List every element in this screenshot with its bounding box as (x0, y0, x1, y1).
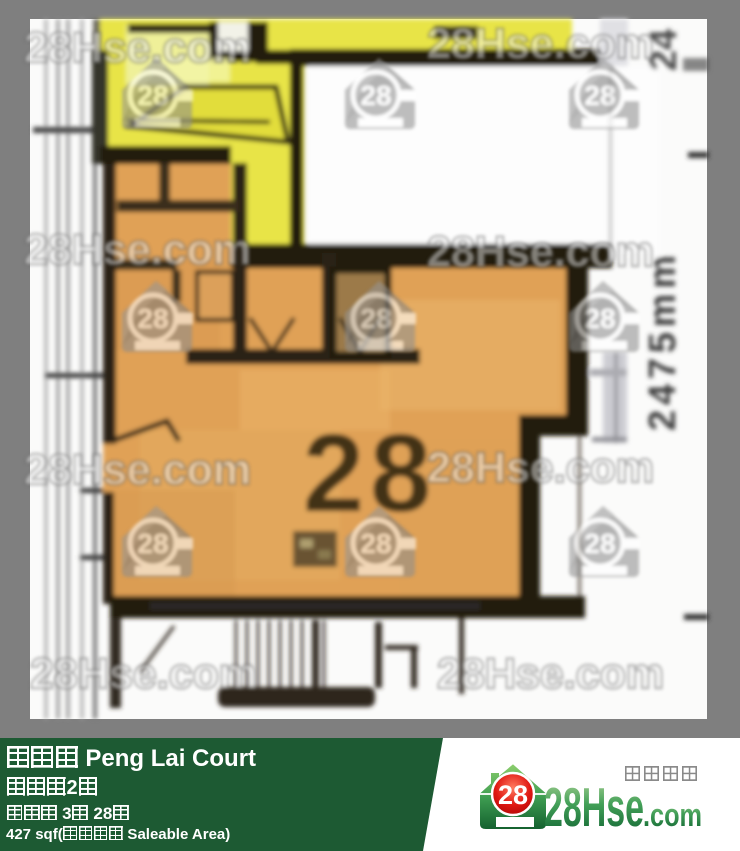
svg-text:.com: .com (643, 797, 702, 833)
svg-text:28Hse: 28Hse (544, 776, 644, 838)
svg-text:2475mm: 2475mm (642, 255, 684, 431)
svg-text:28: 28 (498, 780, 528, 810)
